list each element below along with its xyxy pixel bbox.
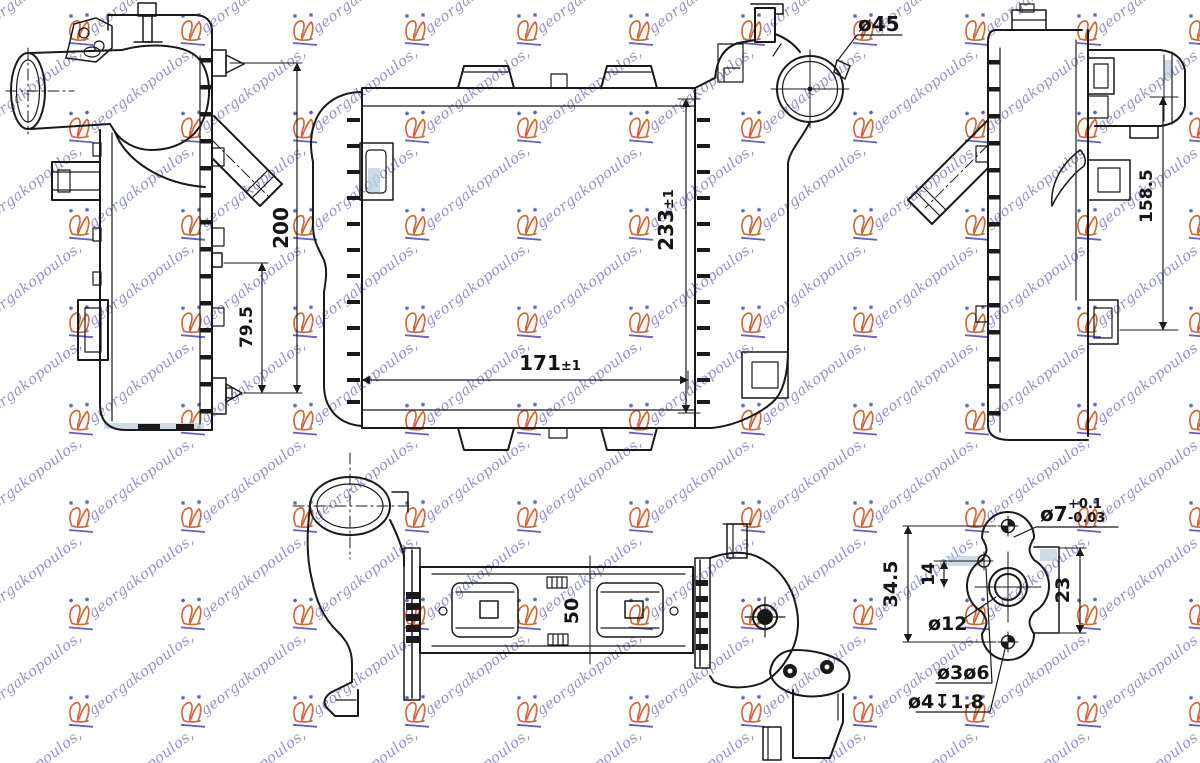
- dim-flange-plate-height: 23: [1052, 577, 1074, 603]
- dim-flange-bolt-span: 34.5: [880, 561, 902, 608]
- dim-front-core-width-tol: ±1: [561, 359, 581, 374]
- dim-flange-pilot-hole: ø7: [1040, 502, 1068, 526]
- dim-flange-counterbore: ø3ø6: [937, 662, 990, 684]
- view-front: ø45 233±1 171±1: [311, 4, 902, 450]
- dim-front-core-width: 171±1: [519, 351, 581, 375]
- dim-side-left-port-offset: 79.5: [237, 306, 257, 348]
- view-side-left: 200 79.5: [6, 3, 302, 430]
- dim-front-core-height: 233±1: [654, 189, 678, 251]
- dim-flange-pilot-tol-lower: -0.03: [1068, 511, 1105, 526]
- dim-front-core-width-value: 171: [519, 351, 561, 375]
- dim-front-core-height-value: 233: [654, 209, 678, 251]
- view-top: 50: [293, 453, 849, 760]
- dim-top-core-depth: 50: [561, 598, 583, 624]
- dim-flange-blind-hole: ø4↧1.8: [908, 691, 984, 713]
- dim-flange-pilot-tol-upper: +0.1: [1068, 497, 1102, 512]
- dim-flange-center-bore: ø12: [928, 613, 968, 635]
- dim-front-core-height-tol: ±1: [662, 189, 677, 209]
- dim-flange-hole-offset: 14: [919, 562, 939, 586]
- dim-side-right-height: 158.5: [1137, 169, 1157, 223]
- view-flange-detail: 34.5 14 23 ø7 +0.1 -0.03 ø12 ø3ø6 ø4↧1.8: [880, 497, 1118, 713]
- fin-ticks-right-view: [988, 60, 1000, 416]
- dim-front-inlet-diameter: ø45: [858, 12, 900, 36]
- fin-ticks-front-right: [697, 118, 710, 404]
- fin-ticks-front-left: [347, 118, 360, 404]
- view-side-right: 158.5: [908, 4, 1185, 440]
- drawing-canvas: georgakopoulos,georgakopoulos,georgakopo…: [0, 0, 1200, 763]
- dim-side-left-height: 200: [269, 207, 293, 249]
- technical-drawing: 200 79.5: [0, 0, 1200, 763]
